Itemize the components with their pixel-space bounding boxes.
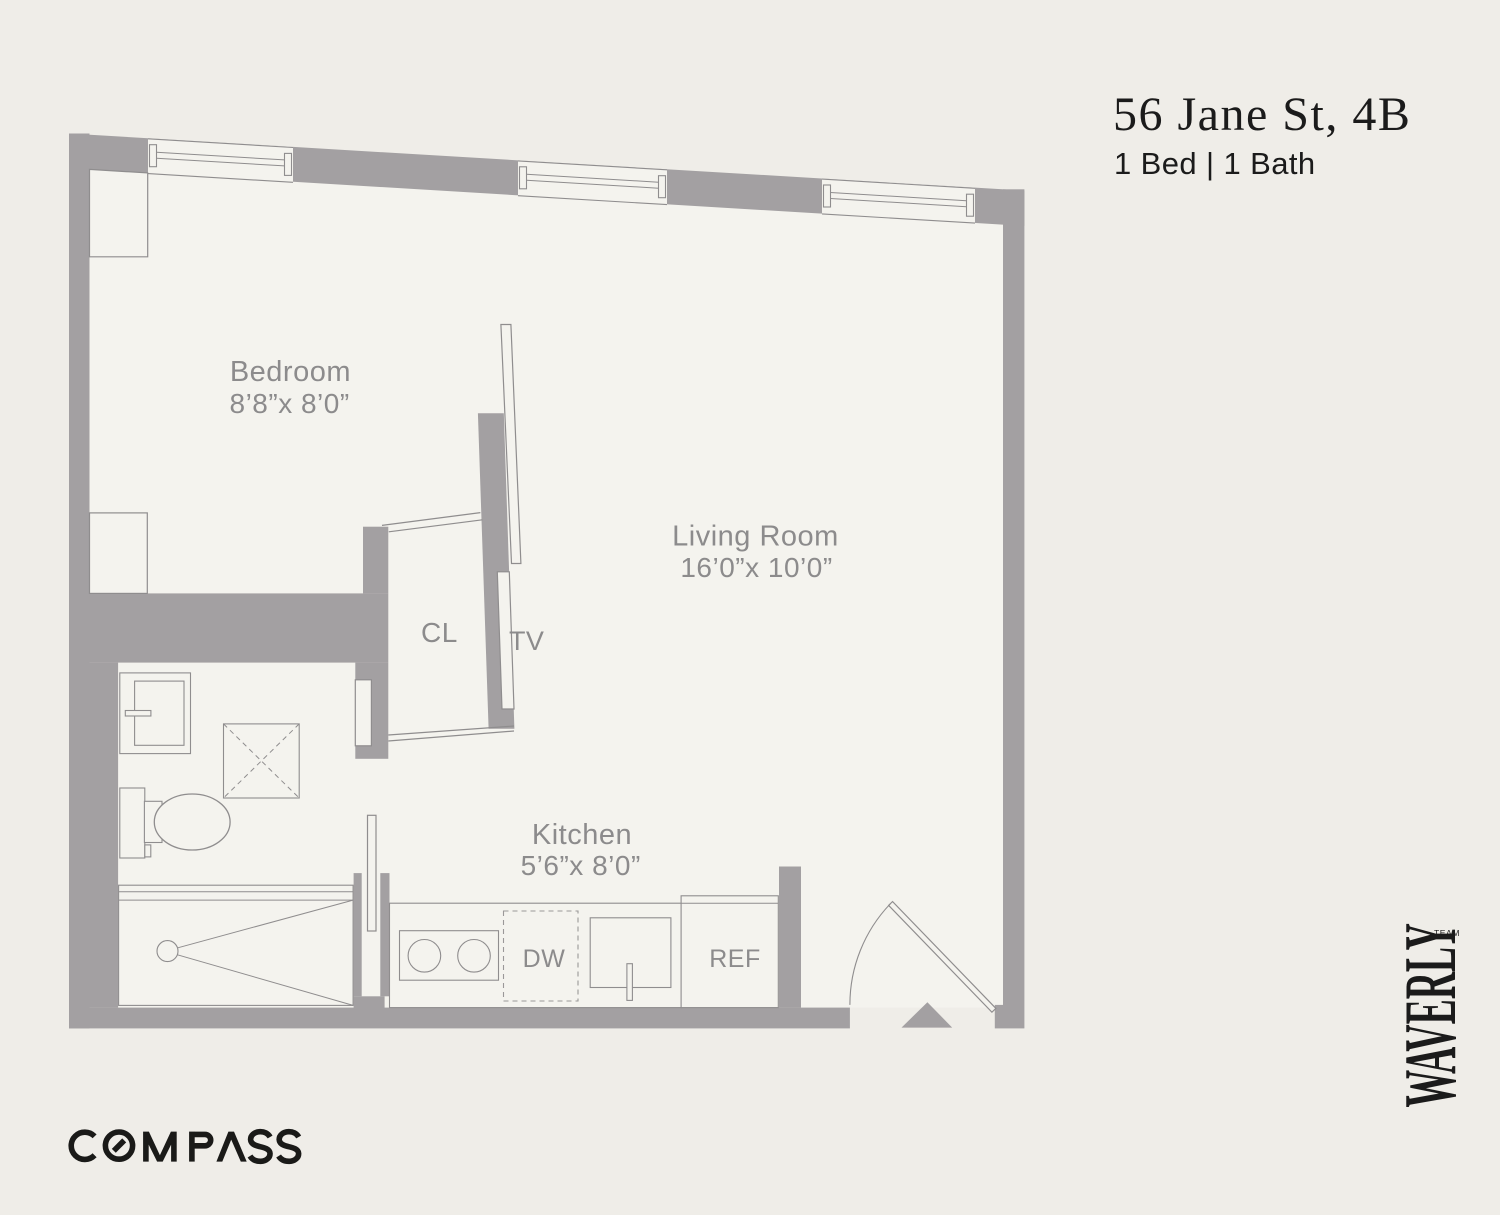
- svg-text:8’8”x 8’0”: 8’8”x 8’0”: [230, 388, 350, 419]
- svg-text:Kitchen: Kitchen: [532, 819, 632, 851]
- svg-text:1 Bed | 1 Bath: 1 Bed | 1 Bath: [1114, 146, 1316, 181]
- svg-text:5’6”x 8’0”: 5’6”x 8’0”: [521, 850, 641, 881]
- svg-text:Bedroom: Bedroom: [230, 356, 351, 388]
- svg-text:56 Jane St, 4B: 56 Jane St, 4B: [1113, 88, 1411, 141]
- svg-text:DW: DW: [523, 945, 566, 973]
- svg-text:WAVERLY: WAVERLY: [1388, 923, 1471, 1107]
- svg-text:REF: REF: [709, 945, 761, 973]
- svg-text:TEAM: TEAM: [1434, 928, 1460, 938]
- svg-text:TV: TV: [509, 626, 545, 656]
- svg-text:16’0”x 10’0”: 16’0”x 10’0”: [680, 552, 832, 583]
- svg-text:CL: CL: [421, 617, 458, 648]
- svg-text:Living Room: Living Room: [672, 521, 839, 553]
